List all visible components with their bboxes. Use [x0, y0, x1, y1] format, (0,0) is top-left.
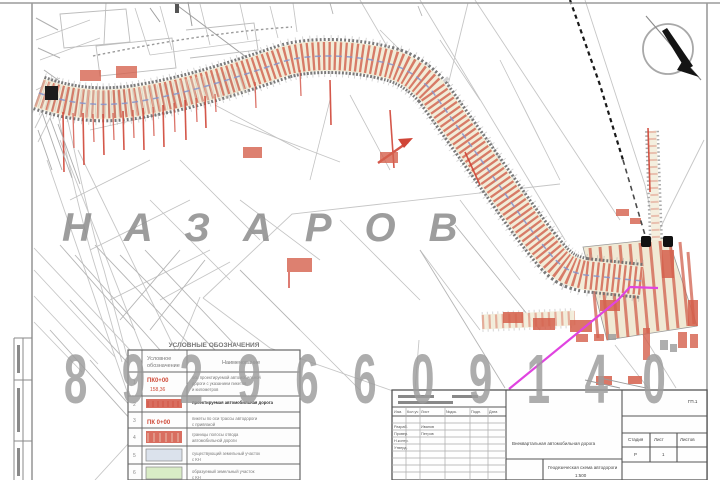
- svg-text:Стадия: Стадия: [628, 437, 644, 442]
- svg-text:ПК 0+00: ПК 0+00: [147, 420, 171, 426]
- svg-text:Внеквартальная автомобильная д: Внеквартальная автомобильная дорога: [512, 441, 596, 446]
- svg-text:Петров: Петров: [421, 432, 434, 436]
- svg-text:с КН: с КН: [192, 475, 201, 480]
- svg-text:образуемый земельный участок: образуемый земельный участок: [192, 469, 255, 474]
- svg-text:границы полосы отвода: границы полосы отвода: [192, 432, 239, 437]
- svg-text:1:500: 1:500: [575, 473, 587, 478]
- svg-text:автомобильной дороги: автомобильной дороги: [192, 438, 237, 443]
- svg-text:Лист: Лист: [654, 437, 664, 442]
- svg-text:Геодезическая схема автодороги: Геодезическая схема автодороги: [548, 465, 618, 470]
- svg-text:4: 4: [133, 435, 136, 441]
- svg-text:5: 5: [133, 453, 136, 459]
- svg-text:Р: Р: [634, 452, 637, 457]
- svg-text:НАЗАРОВ: НАЗАРОВ: [62, 206, 491, 250]
- svg-text:Утверд.: Утверд.: [394, 446, 408, 450]
- svg-text:Иванов: Иванов: [421, 425, 434, 429]
- svg-text:существующий земельный участок: существующий земельный участок: [192, 451, 260, 456]
- svg-text:Разраб.: Разраб.: [394, 425, 408, 429]
- svg-text:89296609140: 89296609140: [64, 341, 700, 419]
- svg-text:с привязкой: с привязкой: [192, 422, 216, 427]
- svg-text:с КН: с КН: [192, 457, 201, 462]
- svg-text:Провер.: Провер.: [394, 432, 408, 436]
- svg-text:Листов: Листов: [680, 437, 695, 442]
- svg-text:6: 6: [133, 470, 136, 476]
- svg-text:3: 3: [133, 418, 136, 424]
- svg-text:Н.контр.: Н.контр.: [394, 439, 409, 443]
